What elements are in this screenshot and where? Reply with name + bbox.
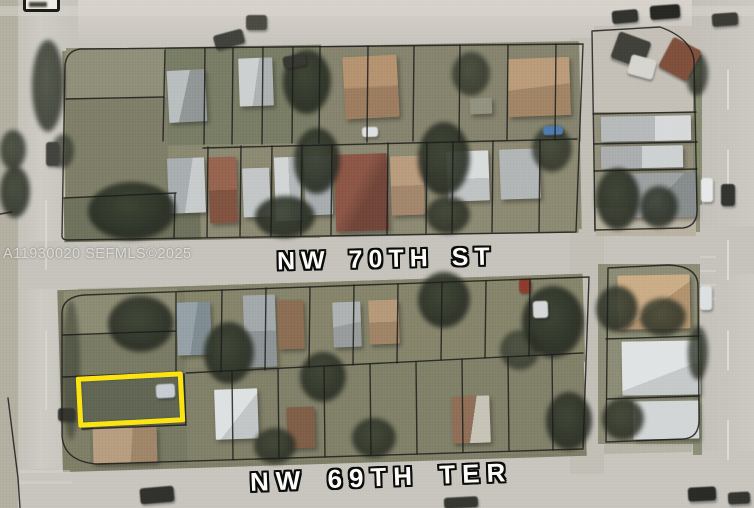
parcel-line [555,44,556,140]
parcel-line [319,47,320,143]
parcel-line [367,46,368,142]
parcel-line [606,336,699,339]
parcel-line [507,45,508,140]
parcel-line [441,282,442,360]
aerial-map[interactable]: NW 70TH ST NW 69TH TER A11930020 SEFMLS©… [0,0,754,508]
parcel-line [459,45,460,141]
parcel-line [271,146,272,236]
parcel-line [8,398,20,508]
parcel-line [606,265,699,442]
parcel-line [174,194,175,238]
parcel-line [163,50,165,141]
parcel-line [62,277,589,464]
parcel-line [370,364,371,455]
parcel-line [278,369,279,458]
parcel-line [232,48,233,144]
parcel-line [324,367,325,457]
parcel-line [240,146,241,236]
parcel-line [353,285,354,365]
parcel-line [552,355,553,450]
parcel-line [592,27,697,230]
parcel-line [413,46,414,141]
parcel-line [62,44,583,240]
parcel-line [593,112,696,114]
parcel-line [452,142,453,233]
parcel-line [529,279,530,356]
parcel-line [64,193,176,198]
parcel-line [265,288,266,370]
cutoff-map-label [23,0,60,12]
parcel-line [221,290,222,372]
parcel-line [416,362,417,454]
parcel-line [301,145,302,235]
parcel-line [462,359,463,452]
parcel-line [331,145,332,235]
parcel-line [492,141,493,232]
parcel-line [426,143,427,233]
label-smudge [29,2,47,7]
parcel-line [186,353,583,373]
parcel-line [63,331,176,335]
parcel-line [203,139,577,148]
street-label-nw-70th-st: NW 70TH ST [277,243,496,277]
parcel-line [0,212,12,214]
subject-property-highlight [76,371,186,428]
parcel-line [397,284,398,363]
parcel-line [485,281,486,358]
parcel-line [607,396,699,399]
parcel-line [387,143,388,234]
parcel-line [508,357,509,451]
parcel-line [232,372,233,460]
parcel-line [262,47,263,144]
parcel-line [292,47,293,143]
mls-watermark: A11930020 SEFMLS©2025 [3,246,192,262]
parcel-line [594,169,697,171]
parcel-line [207,147,208,237]
parcel-line [309,287,310,367]
parcel-line [539,140,540,232]
parcel-line [594,142,697,144]
parcel-line [66,97,164,99]
parcel-line [204,48,205,144]
